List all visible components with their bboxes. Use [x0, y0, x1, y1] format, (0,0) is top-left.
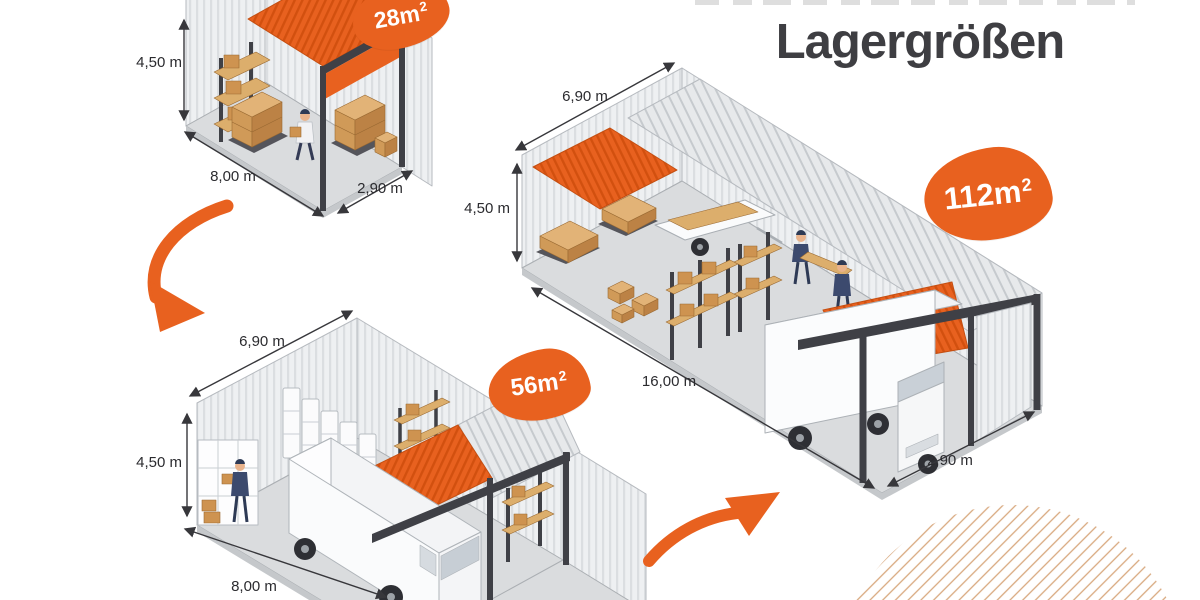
page-title: Lagergrößen	[730, 14, 1110, 70]
dim-label-depth-small: 8,00 m	[201, 168, 265, 185]
area-value: 28m	[372, 1, 421, 32]
area-sup: 2	[418, 0, 428, 14]
area-value: 112m	[942, 175, 1022, 214]
dim-label-height-medium: 4,50 m	[118, 454, 182, 471]
dim-label-top-large: 6,90 m	[553, 88, 617, 105]
warehouse-large	[516, 63, 1042, 500]
cube-shelf	[198, 440, 258, 525]
area-sup: 2	[558, 369, 568, 384]
dim-label-top-medium: 6,90 m	[230, 333, 294, 350]
area-sup: 2	[1021, 175, 1033, 194]
dim-label-height-small: 4,50 m	[118, 54, 182, 71]
area-value: 56m	[509, 370, 560, 400]
dim-label-width-small: 2,90 m	[348, 180, 412, 197]
dim-label-height-large: 4,50 m	[446, 200, 510, 217]
dim-label-depth-large: 16,00 m	[637, 373, 701, 390]
dim-label-depth-medium: 8,00 m	[222, 578, 286, 595]
dim-label-width-large: 2,90 m	[918, 452, 982, 469]
curved-arrow-down-icon	[150, 206, 227, 332]
warehouse-medium	[185, 311, 646, 600]
cropped-heading-fragment	[695, 0, 1135, 5]
curved-arrow-up-icon	[649, 492, 780, 561]
hatched-dot-decoration	[837, 505, 1187, 600]
infographic-storage-sizes: Lagergrößen 28m2 56m2 112m2 4,50 m 8,00 …	[0, 0, 1200, 600]
